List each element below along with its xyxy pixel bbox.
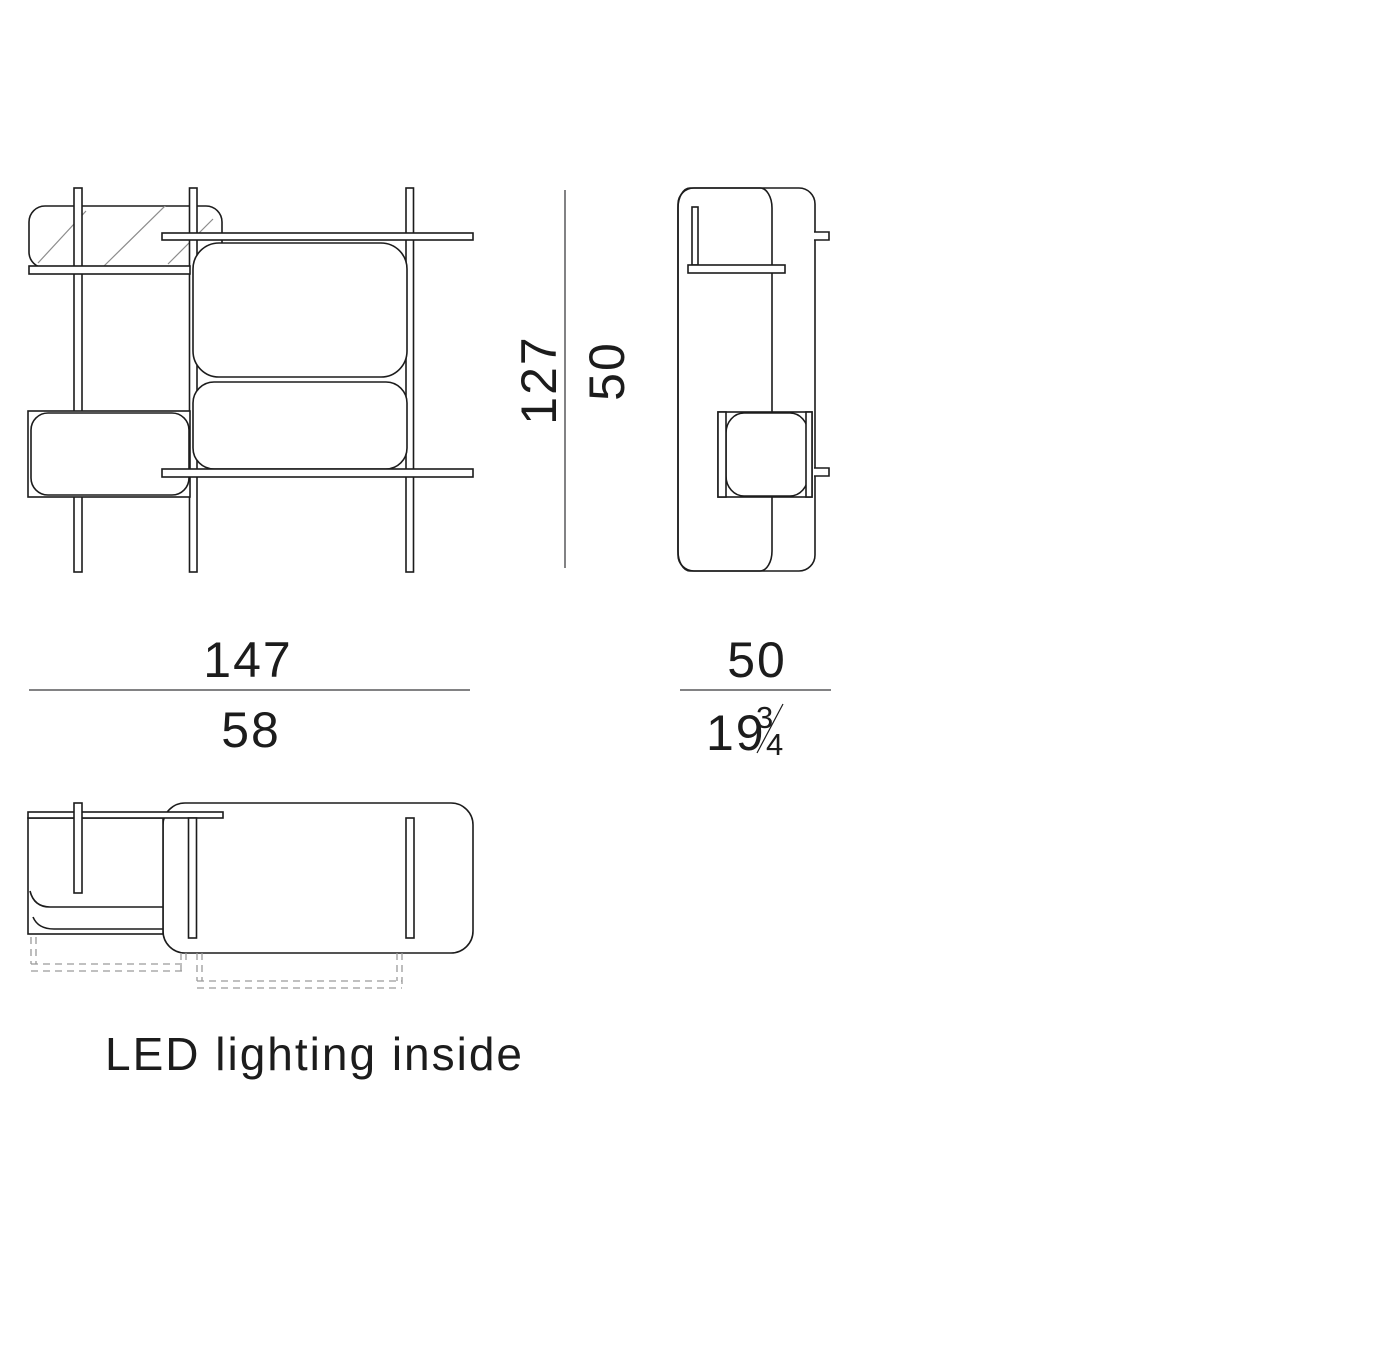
height-cm-label: 127	[511, 335, 567, 424]
top-main-body	[163, 803, 473, 953]
top-slat-middle	[189, 818, 197, 938]
side-shelf-section	[688, 265, 785, 273]
width-cm-label: 147	[203, 632, 292, 688]
top-view	[28, 803, 473, 953]
post-right	[406, 188, 414, 572]
side-view	[678, 188, 829, 571]
side-drawer-front	[726, 413, 808, 496]
left-cabinet-front	[31, 413, 189, 495]
height-inches-label: 50	[579, 341, 635, 401]
top-long-shelf	[162, 233, 473, 240]
post-left	[74, 188, 82, 572]
bottom-long-shelf	[162, 469, 473, 477]
furniture-dimension-diagram: 147 58 50 19 3 4 127 50 LED lighting ins…	[0, 0, 1400, 1347]
depth-cm-label: 50	[727, 632, 787, 688]
side-drawer-right-panel	[806, 412, 812, 497]
top-glass-strip	[28, 812, 223, 818]
technical-drawing-page: 147 58 50 19 3 4 127 50 LED lighting ins…	[0, 0, 1400, 1347]
right-lower-cabinet	[193, 382, 407, 469]
led-lighting-note: LED lighting inside	[105, 1028, 524, 1080]
led-outline-left	[31, 937, 186, 971]
depth-fraction-denominator: 4	[766, 727, 783, 762]
top-slat-right	[406, 818, 414, 938]
side-shelf-tab-bottom	[814, 468, 829, 476]
side-drawer-left-panel	[718, 412, 726, 497]
left-shelf	[29, 266, 190, 274]
side-shelf-tab-top	[814, 232, 829, 240]
top-post-left	[74, 803, 82, 893]
width-inches-label: 58	[221, 702, 281, 758]
top-left-box	[28, 818, 163, 934]
side-inner-post	[692, 207, 698, 265]
post-middle	[190, 188, 198, 572]
front-view	[28, 188, 473, 572]
right-upper-cabinet	[193, 243, 407, 377]
led-outline-right	[197, 953, 402, 988]
